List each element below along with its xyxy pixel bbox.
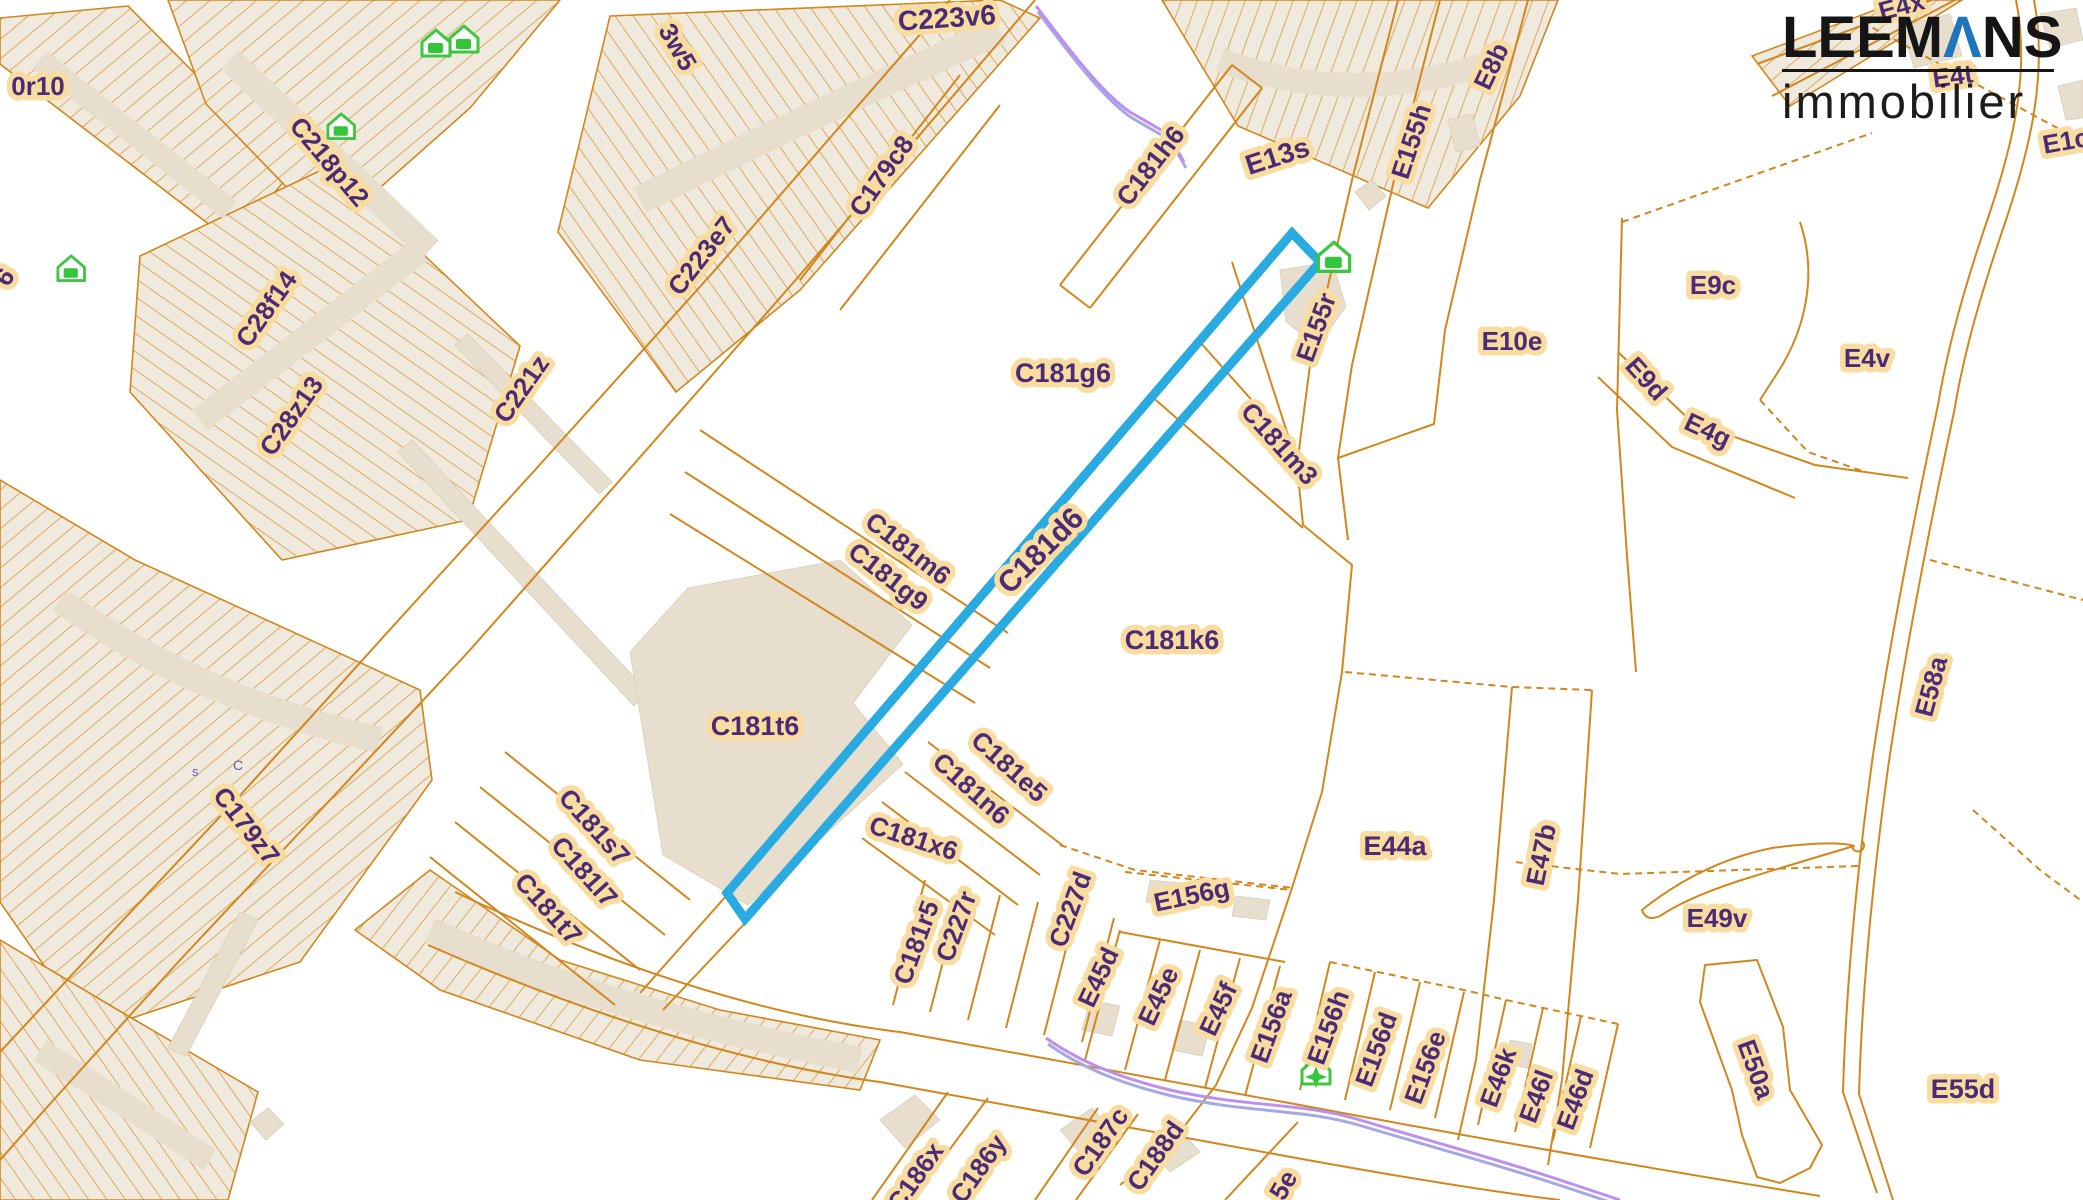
parcel-boundary [1617, 218, 1636, 672]
parcel-label: E4g [1680, 406, 1736, 453]
parcel-label: E10e [1482, 326, 1543, 356]
house-filled-icon [1318, 242, 1349, 271]
brand-logo: LEEMΛNS immobilier [1782, 8, 2078, 129]
logo-wordmark: LEEMΛNS [1782, 8, 2078, 69]
parcel-label: E46d [1550, 1065, 1599, 1134]
parcel-label: C181t6 [711, 711, 800, 741]
house-icon-part [428, 43, 443, 53]
parcel-label: E45e [1132, 962, 1185, 1030]
parcel-boundary [640, 895, 727, 993]
parcel-label: E55d [1931, 1074, 1996, 1104]
parcel-label: C186y [944, 1128, 1013, 1200]
building [880, 1095, 940, 1148]
parcel-boundary [1345, 672, 1592, 690]
parcel-boundary [663, 920, 748, 1010]
parcel-label: E58a [1909, 653, 1954, 720]
city-block-stripes [0, 480, 432, 1032]
parcel-label: C181x6 [866, 810, 962, 867]
parcel-boundary [1120, 932, 1285, 962]
parcel-label: E156g [1151, 872, 1232, 917]
parcel-label: 6 [0, 262, 21, 291]
house-icon-part [64, 268, 78, 278]
cadastral-map: 0r1063w5C223v6C218p12C28f14C28z13C221zC2… [0, 0, 2083, 1200]
parcel-label: E45f [1193, 978, 1244, 1041]
parcel-label: E49v [1687, 903, 1748, 933]
parcel-label: C181h6 [1110, 120, 1191, 211]
parcel-label: 0r10 [11, 71, 65, 101]
parcel-label: C227d [1043, 867, 1098, 951]
parcel-boundary [1006, 902, 1038, 1028]
parcel-boundary [1642, 843, 1854, 918]
building [1232, 896, 1270, 920]
logo-wordmark-a-triangle: Λ [1943, 5, 1982, 70]
parcel-label: E44a [1363, 831, 1427, 861]
logo-subtitle: immobilier [1782, 74, 2078, 129]
logo-wordmark-pre: LEEM [1782, 5, 1943, 70]
parcel-label: E46k [1474, 1043, 1523, 1111]
house-icon-part [334, 126, 348, 136]
parcel-label: E4v [1844, 343, 1891, 373]
parcel-label: C181k6 [1125, 625, 1220, 655]
logo-wordmark-post: NS [1982, 5, 2063, 70]
street-annotation: s [192, 764, 199, 779]
parcel-label: E156a [1244, 985, 1298, 1066]
parcel-label: C181g6 [1015, 358, 1111, 388]
parcel-label: C186x [881, 1136, 950, 1200]
parcel-label: E9c [1690, 270, 1736, 300]
parcel-boundary [1622, 133, 1872, 222]
parcel-label: E47b [1520, 821, 1562, 888]
building [250, 1108, 284, 1140]
house-icon [58, 256, 85, 281]
city-block-stripes [1162, 0, 1558, 208]
parcel-boundary [1515, 862, 1858, 874]
parcel-label: E156h [1301, 986, 1355, 1068]
parcel-boundary [1843, 0, 2021, 1193]
street-annotation: C [233, 757, 243, 773]
house-filled-icon-part [1325, 257, 1342, 268]
parcel-boundary [1930, 560, 2083, 600]
parcel-boundary [1060, 285, 1090, 308]
parcel-boundary [1859, 0, 2039, 1200]
parcel-boundary [1760, 400, 1865, 472]
parcel-label: E50a [1732, 1036, 1781, 1104]
parcel-label: 5e [1263, 1165, 1303, 1200]
house-icon-part [456, 39, 471, 49]
parcel-boundary [1760, 222, 1808, 400]
parcel-boundary [1973, 810, 2083, 902]
parcel-label: E45d [1071, 943, 1124, 1012]
